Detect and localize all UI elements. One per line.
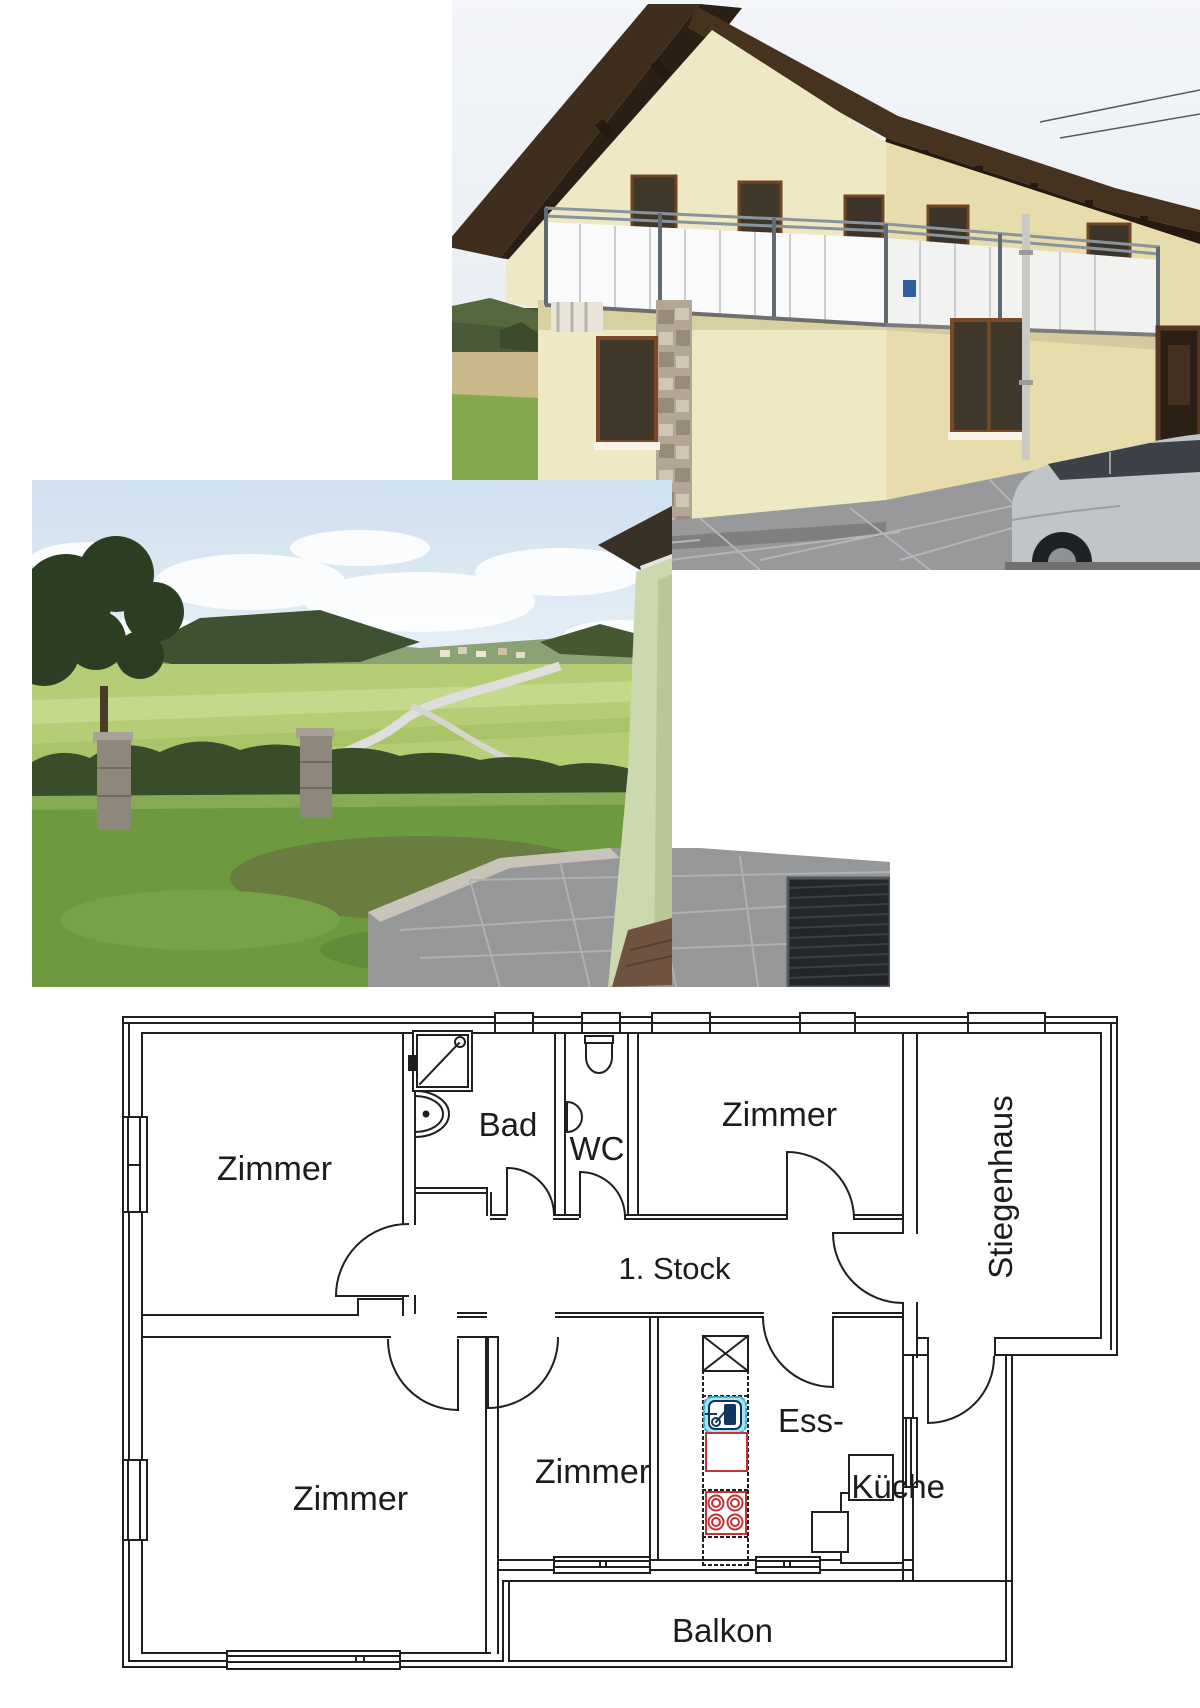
- stove-icon: [706, 1492, 746, 1534]
- bathroom-label: Bad: [458, 1106, 558, 1144]
- room-label-top-left: Zimmer: [172, 1150, 377, 1189]
- toilet-icon: [585, 1036, 613, 1073]
- room-label-top-right: Zimmer: [677, 1096, 882, 1135]
- staircase-label: Stiegenhaus: [982, 1067, 1022, 1307]
- kitchen-label-line1: Ess-: [778, 1402, 844, 1439]
- wc-label: WC: [562, 1130, 632, 1168]
- kitchen-sink-icon: [704, 1397, 746, 1433]
- floor-label: 1. Stock: [592, 1251, 757, 1287]
- kitchen-label-line2: Küche: [851, 1468, 945, 1505]
- room-label-bottom-left: Zimmer: [248, 1480, 453, 1519]
- balcony-label: Balkon: [620, 1612, 825, 1650]
- collage-canvas: Zimmer Bad WC Zimmer Stiegenhaus 1. Stoc…: [0, 0, 1200, 1708]
- chimney: [703, 1336, 748, 1371]
- kitchen-worktop: [706, 1433, 747, 1471]
- bath-sink-icon: [415, 1091, 449, 1137]
- room-label-bottom-middle: Zimmer: [490, 1453, 695, 1492]
- balcony-sign: [903, 280, 916, 297]
- awning: [551, 302, 603, 332]
- garden-view-photo: [32, 480, 890, 987]
- shower-icon: [409, 1031, 472, 1091]
- kitchen-label: Ess- Küche: [778, 1404, 918, 1503]
- wc-sink-icon: [567, 1102, 582, 1132]
